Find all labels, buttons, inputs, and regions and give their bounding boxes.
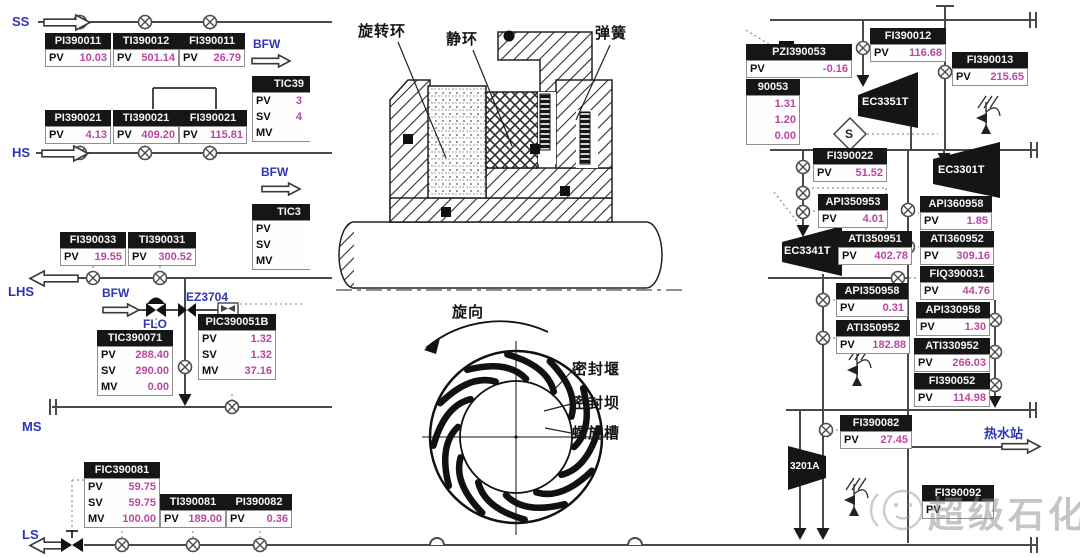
tag-FI390022[interactable]: FI390022PV51.52: [813, 148, 887, 182]
tag-row-value: 0.36: [267, 511, 288, 527]
tag-API350953[interactable]: API350953PV4.01: [818, 194, 888, 228]
tag-row-value: 37.16: [244, 363, 272, 379]
tag-row-value: 300.52: [158, 249, 192, 265]
tag-TIC3[interactable]: TIC3PVSVMV: [252, 204, 310, 270]
tag-title: 90053: [746, 79, 800, 95]
tag-title: API350953: [818, 194, 888, 210]
tag-row-value: 4.01: [863, 211, 884, 227]
tag-row: PV300.52: [132, 249, 192, 265]
tag-FI390082[interactable]: FI390082PV27.45: [840, 415, 912, 449]
tag-row-value: 0.00: [148, 379, 169, 395]
tag-row-label: PV: [183, 50, 198, 66]
tag-row: PV1.32: [202, 331, 272, 347]
tag-FIQ390031[interactable]: FIQ390031PV44.76: [920, 266, 994, 300]
tag-values: PV1.32SV1.32MV37.16: [198, 330, 276, 380]
tag-row: PV26.79: [183, 50, 241, 66]
tag-row-value: 4.13: [86, 127, 107, 143]
tag-row: PV309.16: [924, 248, 990, 264]
tag-row-label: PV: [256, 93, 271, 109]
tag-row-label: PV: [88, 479, 103, 495]
tag-title: API360958: [920, 196, 992, 212]
tag-row-value: 189.00: [188, 511, 222, 527]
tag-values: PV51.52: [813, 164, 887, 182]
tag-row-value: 215.65: [990, 69, 1024, 85]
tag-row-value: 0.00: [775, 128, 796, 144]
tag-title: TIC3: [252, 204, 310, 220]
tag-FIC390081[interactable]: FIC390081PV59.75SV59.75MV100.00: [84, 462, 160, 528]
tag-values: PV501.14: [113, 49, 179, 67]
tag-row-value: 182.88: [872, 337, 906, 353]
tag-FI390052[interactable]: FI390052PV114.98: [914, 373, 990, 407]
tag-row-value: 501.14: [141, 50, 175, 66]
tag-row-value: [302, 253, 310, 269]
tag-row-value: 115.81: [210, 127, 243, 143]
tag-row-label: PV: [918, 355, 933, 371]
tag-TI390031[interactable]: TI390031PV300.52: [128, 232, 196, 266]
tag-values: PV288.40SV290.00MV0.00: [97, 346, 173, 396]
tag-title: FI390021: [179, 110, 247, 126]
tag-row: PV189.00: [164, 511, 222, 527]
tag-API360958[interactable]: API360958PV1.85: [920, 196, 992, 230]
tag-row-value: 3: [296, 93, 310, 109]
tag-row-value: 288.40: [135, 347, 169, 363]
tag-title: FI390012: [870, 28, 946, 44]
tag-row: PV4.13: [49, 127, 107, 143]
tag-row-value: 27.45: [880, 432, 908, 448]
tag-row: PV1.30: [920, 319, 986, 335]
tag-row: PV19.55: [64, 249, 122, 265]
tag-row-value: 1.31: [775, 96, 796, 112]
tag-API330958[interactable]: API330958PV1.30: [916, 302, 990, 336]
tag-row-value: 1.30: [965, 319, 986, 335]
tag-row-label: PV: [49, 127, 64, 143]
tag-row-label: PV: [817, 165, 832, 181]
tag-row-label: PV: [132, 249, 147, 265]
tag-API350958[interactable]: API350958PV0.31: [836, 283, 908, 317]
tag-row: PV27.45: [844, 432, 908, 448]
tag-row-value: 26.79: [213, 50, 241, 66]
tag-row: PV116.68: [874, 45, 942, 61]
tag-row-label: PV: [183, 127, 198, 143]
tag-row: PV182.88: [840, 337, 906, 353]
tag-FI390092[interactable]: FI390092PV: [922, 485, 994, 519]
tag-row-label: PV: [844, 432, 859, 448]
tag-row-label: PV: [202, 331, 217, 347]
tag-row: SV: [256, 237, 310, 253]
tag-title: FIQ390031: [920, 266, 994, 282]
tag-values: PV0.36: [226, 510, 292, 528]
tag-row-label: PV: [840, 337, 855, 353]
tag-PI390082[interactable]: PI390082PV0.36: [226, 494, 292, 528]
tag-row: PV114.98: [918, 390, 986, 406]
tag-title: FI390033: [60, 232, 126, 248]
tag-row: PV51.52: [817, 165, 883, 181]
tag-title: FIC390081: [84, 462, 160, 478]
tag-values: PV409.20: [113, 126, 179, 144]
tag-row-value: 402.78: [874, 248, 908, 264]
tag-row-label: SV: [88, 495, 103, 511]
tag-title: ATI360952: [920, 231, 994, 247]
tag-ATI350951[interactable]: ATI350951PV402.78: [838, 231, 912, 265]
tag-values: PV300.52: [128, 248, 196, 266]
tag-row-value: 116.68: [909, 45, 942, 61]
tag-FI390012[interactable]: FI390012PV116.68: [870, 28, 946, 62]
tag-values: PV59.75SV59.75MV100.00: [84, 478, 160, 528]
tag-row-value: 1.32: [251, 347, 272, 363]
tag-row-label: PV: [230, 511, 245, 527]
tag-row: SV1.32: [202, 347, 272, 363]
tag-ATI330952[interactable]: ATI330952PV266.03: [914, 338, 990, 372]
tag-values: PV402.78: [838, 247, 912, 265]
tag-row-label: MV: [101, 379, 118, 395]
tag-TI390012[interactable]: TI390012PV501.14: [113, 33, 179, 67]
tag-values: PV116.68: [870, 44, 946, 62]
tag-row-label: PV: [924, 248, 939, 264]
tag-row-label: PV: [842, 248, 857, 264]
tag-row-value: 1.85: [967, 213, 988, 229]
tag-faceplate-layer: PI390011PV10.03TI390012PV501.14FI390011P…: [0, 0, 1080, 557]
tag-row-value: 266.03: [952, 355, 986, 371]
tag-row-value: 290.00: [135, 363, 169, 379]
tag-row-value: 114.98: [953, 390, 986, 406]
tag-row: PV215.65: [956, 69, 1024, 85]
tag-FI390011[interactable]: FI390011PV26.79: [179, 33, 245, 67]
tag-row: PV4.01: [822, 211, 884, 227]
tag-row-value: 1.32: [251, 331, 272, 347]
tag-title: ATI330952: [914, 338, 990, 354]
tag-row: MV: [256, 253, 310, 269]
tag-title: FI390022: [813, 148, 887, 164]
tag-row-value: 59.75: [128, 495, 156, 511]
tag-row-label: PV: [117, 127, 132, 143]
tag-title: API350958: [836, 283, 908, 299]
tag-title: TI390031: [128, 232, 196, 248]
tag-title: ATI350952: [836, 320, 910, 336]
tag-title: TI390021: [113, 110, 179, 126]
tag-values: PV10.03: [45, 49, 111, 67]
tag-row: PV-0.16: [750, 61, 848, 77]
tag-row-label: PV: [822, 211, 837, 227]
tag-row: PV1.85: [924, 213, 988, 229]
tag-row-label: PV: [64, 249, 79, 265]
tag-ATI350952[interactable]: ATI350952PV182.88: [836, 320, 910, 354]
tag-title: TIC39: [252, 76, 310, 92]
tag-TI390021[interactable]: TI390021PV409.20: [113, 110, 179, 144]
tag-row: SV290.00: [101, 363, 169, 379]
tag-row: SV59.75: [88, 495, 156, 511]
tag-values: PV266.03: [914, 354, 990, 372]
tag-row-value: [302, 125, 310, 141]
tag-row-label: PV: [956, 69, 971, 85]
tag-title: PI390021: [45, 110, 111, 126]
tag-values: PV115.81: [179, 126, 247, 144]
tag-row: PV59.75: [88, 479, 156, 495]
tag-row: 1.31: [750, 96, 796, 112]
tag-row-label: PV: [840, 300, 855, 316]
tag-row-value: 100.00: [122, 511, 156, 527]
tag-values: PVSVMV: [252, 220, 310, 270]
tag-row-value: 0.31: [883, 300, 904, 316]
tag-title: PIC390051B: [198, 314, 276, 330]
tag-TI390081[interactable]: TI390081PV189.00: [160, 494, 226, 528]
tag-values: PV4.13: [45, 126, 111, 144]
tag-PI390021[interactable]: PI390021PV4.13: [45, 110, 111, 144]
tag-title: TI390012: [113, 33, 179, 49]
tag-row: PV501.14: [117, 50, 175, 66]
tag-title: FI390092: [922, 485, 994, 501]
tag-row: PV0.36: [230, 511, 288, 527]
tag-row-label: PV: [924, 283, 939, 299]
tag-row-value: 10.03: [79, 50, 107, 66]
tag-values: PV19.55: [60, 248, 126, 266]
tag-values: PV44.76: [920, 282, 994, 300]
tag-values: PV309.16: [920, 247, 994, 265]
tag-row-value: [302, 221, 310, 237]
tag-row: PV288.40: [101, 347, 169, 363]
tag-row-label: PV: [926, 502, 941, 518]
tag-row-value: 59.75: [128, 479, 156, 495]
tag-row-value: 409.20: [141, 127, 175, 143]
tag-title: ATI350951: [838, 231, 912, 247]
tag-row-label: MV: [256, 253, 273, 269]
tag-row: PV3: [256, 93, 310, 109]
tag-title: TI390081: [160, 494, 226, 510]
tag-row-value: [302, 237, 310, 253]
tag-PZI390053[interactable]: PZI390053PV-0.16: [746, 44, 852, 78]
tag-values: PV3SV4MV: [252, 92, 310, 142]
tag-title: API330958: [916, 302, 990, 318]
tag-values: PV1.30: [916, 318, 990, 336]
tag-values: PV-0.16: [746, 60, 852, 78]
tag-FI390013[interactable]: FI390013PV215.65: [952, 52, 1028, 86]
tag-row-label: PV: [256, 221, 271, 237]
tag-row-label: MV: [256, 125, 273, 141]
tag-row-label: SV: [202, 347, 217, 363]
tag-row-value: 51.52: [855, 165, 883, 181]
tag-row-value: -0.16: [823, 61, 848, 77]
tag-row: PV266.03: [918, 355, 986, 371]
tag-row-value: 19.55: [94, 249, 122, 265]
tag-values: PV182.88: [836, 336, 910, 354]
tag-values: 1.311.200.00: [746, 95, 800, 145]
dcs-screen: PI390011PV10.03TI390012PV501.14FI390011P…: [0, 0, 1080, 557]
tag-row-value: 4: [296, 109, 310, 125]
tag-title: PI390082: [226, 494, 292, 510]
tag-values: PV27.45: [840, 431, 912, 449]
tag-title: TIC390071: [97, 330, 173, 346]
tag-row-value: 309.16: [956, 248, 990, 264]
tag-row-label: MV: [88, 511, 105, 527]
tag-FI390033[interactable]: FI390033PV19.55: [60, 232, 126, 266]
tag-row: MV100.00: [88, 511, 156, 527]
tag-row: PV: [926, 502, 990, 518]
tag-title: PZI390053: [746, 44, 852, 60]
tag-row-label: MV: [202, 363, 219, 379]
tag-ATI360952[interactable]: ATI360952PV309.16: [920, 231, 994, 265]
tag-title: FI390011: [179, 33, 245, 49]
tag-row-label: PV: [750, 61, 765, 77]
tag-row: PV409.20: [117, 127, 175, 143]
tag-FI390021[interactable]: FI390021PV115.81: [179, 110, 247, 144]
tag-row: PV44.76: [924, 283, 990, 299]
tag-row: MV37.16: [202, 363, 272, 379]
tag-values: PV0.31: [836, 299, 908, 317]
tag-row-value: 44.76: [962, 283, 990, 299]
tag-title: FI390082: [840, 415, 912, 431]
tag-row: SV4: [256, 109, 310, 125]
tag-values: PV4.01: [818, 210, 888, 228]
tag-PI390011[interactable]: PI390011PV10.03: [45, 33, 111, 67]
tag-row-label: PV: [918, 390, 933, 406]
tag-values: PV215.65: [952, 68, 1028, 86]
tag-row-label: SV: [256, 109, 271, 125]
tag-row: PV: [256, 221, 310, 237]
tag-row: MV: [256, 125, 310, 141]
tag-row: PV402.78: [842, 248, 908, 264]
tag-90053[interactable]: 900531.311.200.00: [746, 79, 800, 145]
tag-row-label: PV: [49, 50, 64, 66]
tag-row-label: PV: [117, 50, 132, 66]
tag-values: PV1.85: [920, 212, 992, 230]
tag-title: PI390011: [45, 33, 111, 49]
tag-TIC39[interactable]: TIC39PV3SV4MV: [252, 76, 310, 142]
tag-row-value: 1.20: [775, 112, 796, 128]
tag-title: FI390052: [914, 373, 990, 389]
tag-row-label: PV: [874, 45, 889, 61]
tag-row-label: PV: [920, 319, 935, 335]
tag-row: PV115.81: [183, 127, 243, 143]
tag-values: PV114.98: [914, 389, 990, 407]
tag-TIC390071[interactable]: TIC390071PV288.40SV290.00MV0.00: [97, 330, 173, 396]
tag-row-label: SV: [101, 363, 116, 379]
tag-row: PV0.31: [840, 300, 904, 316]
tag-values: PV189.00: [160, 510, 226, 528]
tag-row-label: PV: [164, 511, 179, 527]
tag-PIC390051B[interactable]: PIC390051BPV1.32SV1.32MV37.16: [198, 314, 276, 380]
tag-row: MV0.00: [101, 379, 169, 395]
tag-values: PV: [922, 501, 994, 519]
tag-row: PV10.03: [49, 50, 107, 66]
tag-row: 1.20: [750, 112, 796, 128]
tag-row-label: SV: [256, 237, 271, 253]
tag-row-label: PV: [924, 213, 939, 229]
tag-values: PV26.79: [179, 49, 245, 67]
tag-title: FI390013: [952, 52, 1028, 68]
tag-row-label: PV: [101, 347, 116, 363]
tag-row: 0.00: [750, 128, 796, 144]
